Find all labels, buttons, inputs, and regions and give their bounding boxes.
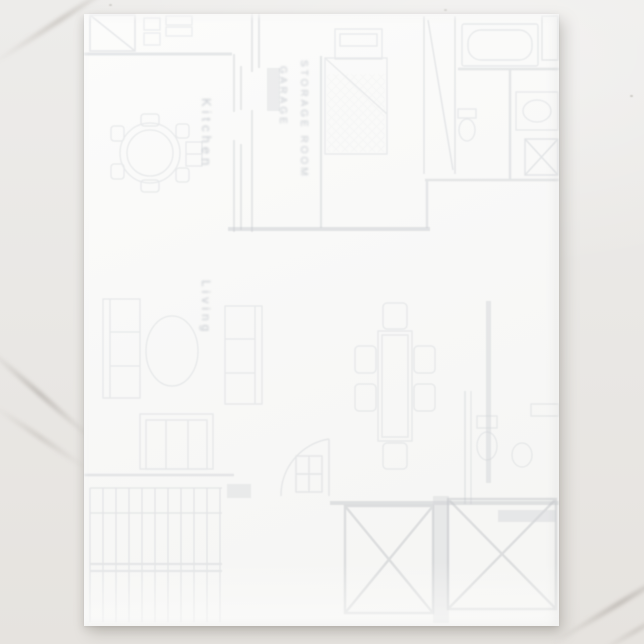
paper-edge-highlight <box>84 14 559 626</box>
letterhead-paper: Kitchen GARAGE STORAGE ROOM Living <box>84 14 559 626</box>
product-photo: Kitchen GARAGE STORAGE ROOM Living <box>0 0 644 644</box>
